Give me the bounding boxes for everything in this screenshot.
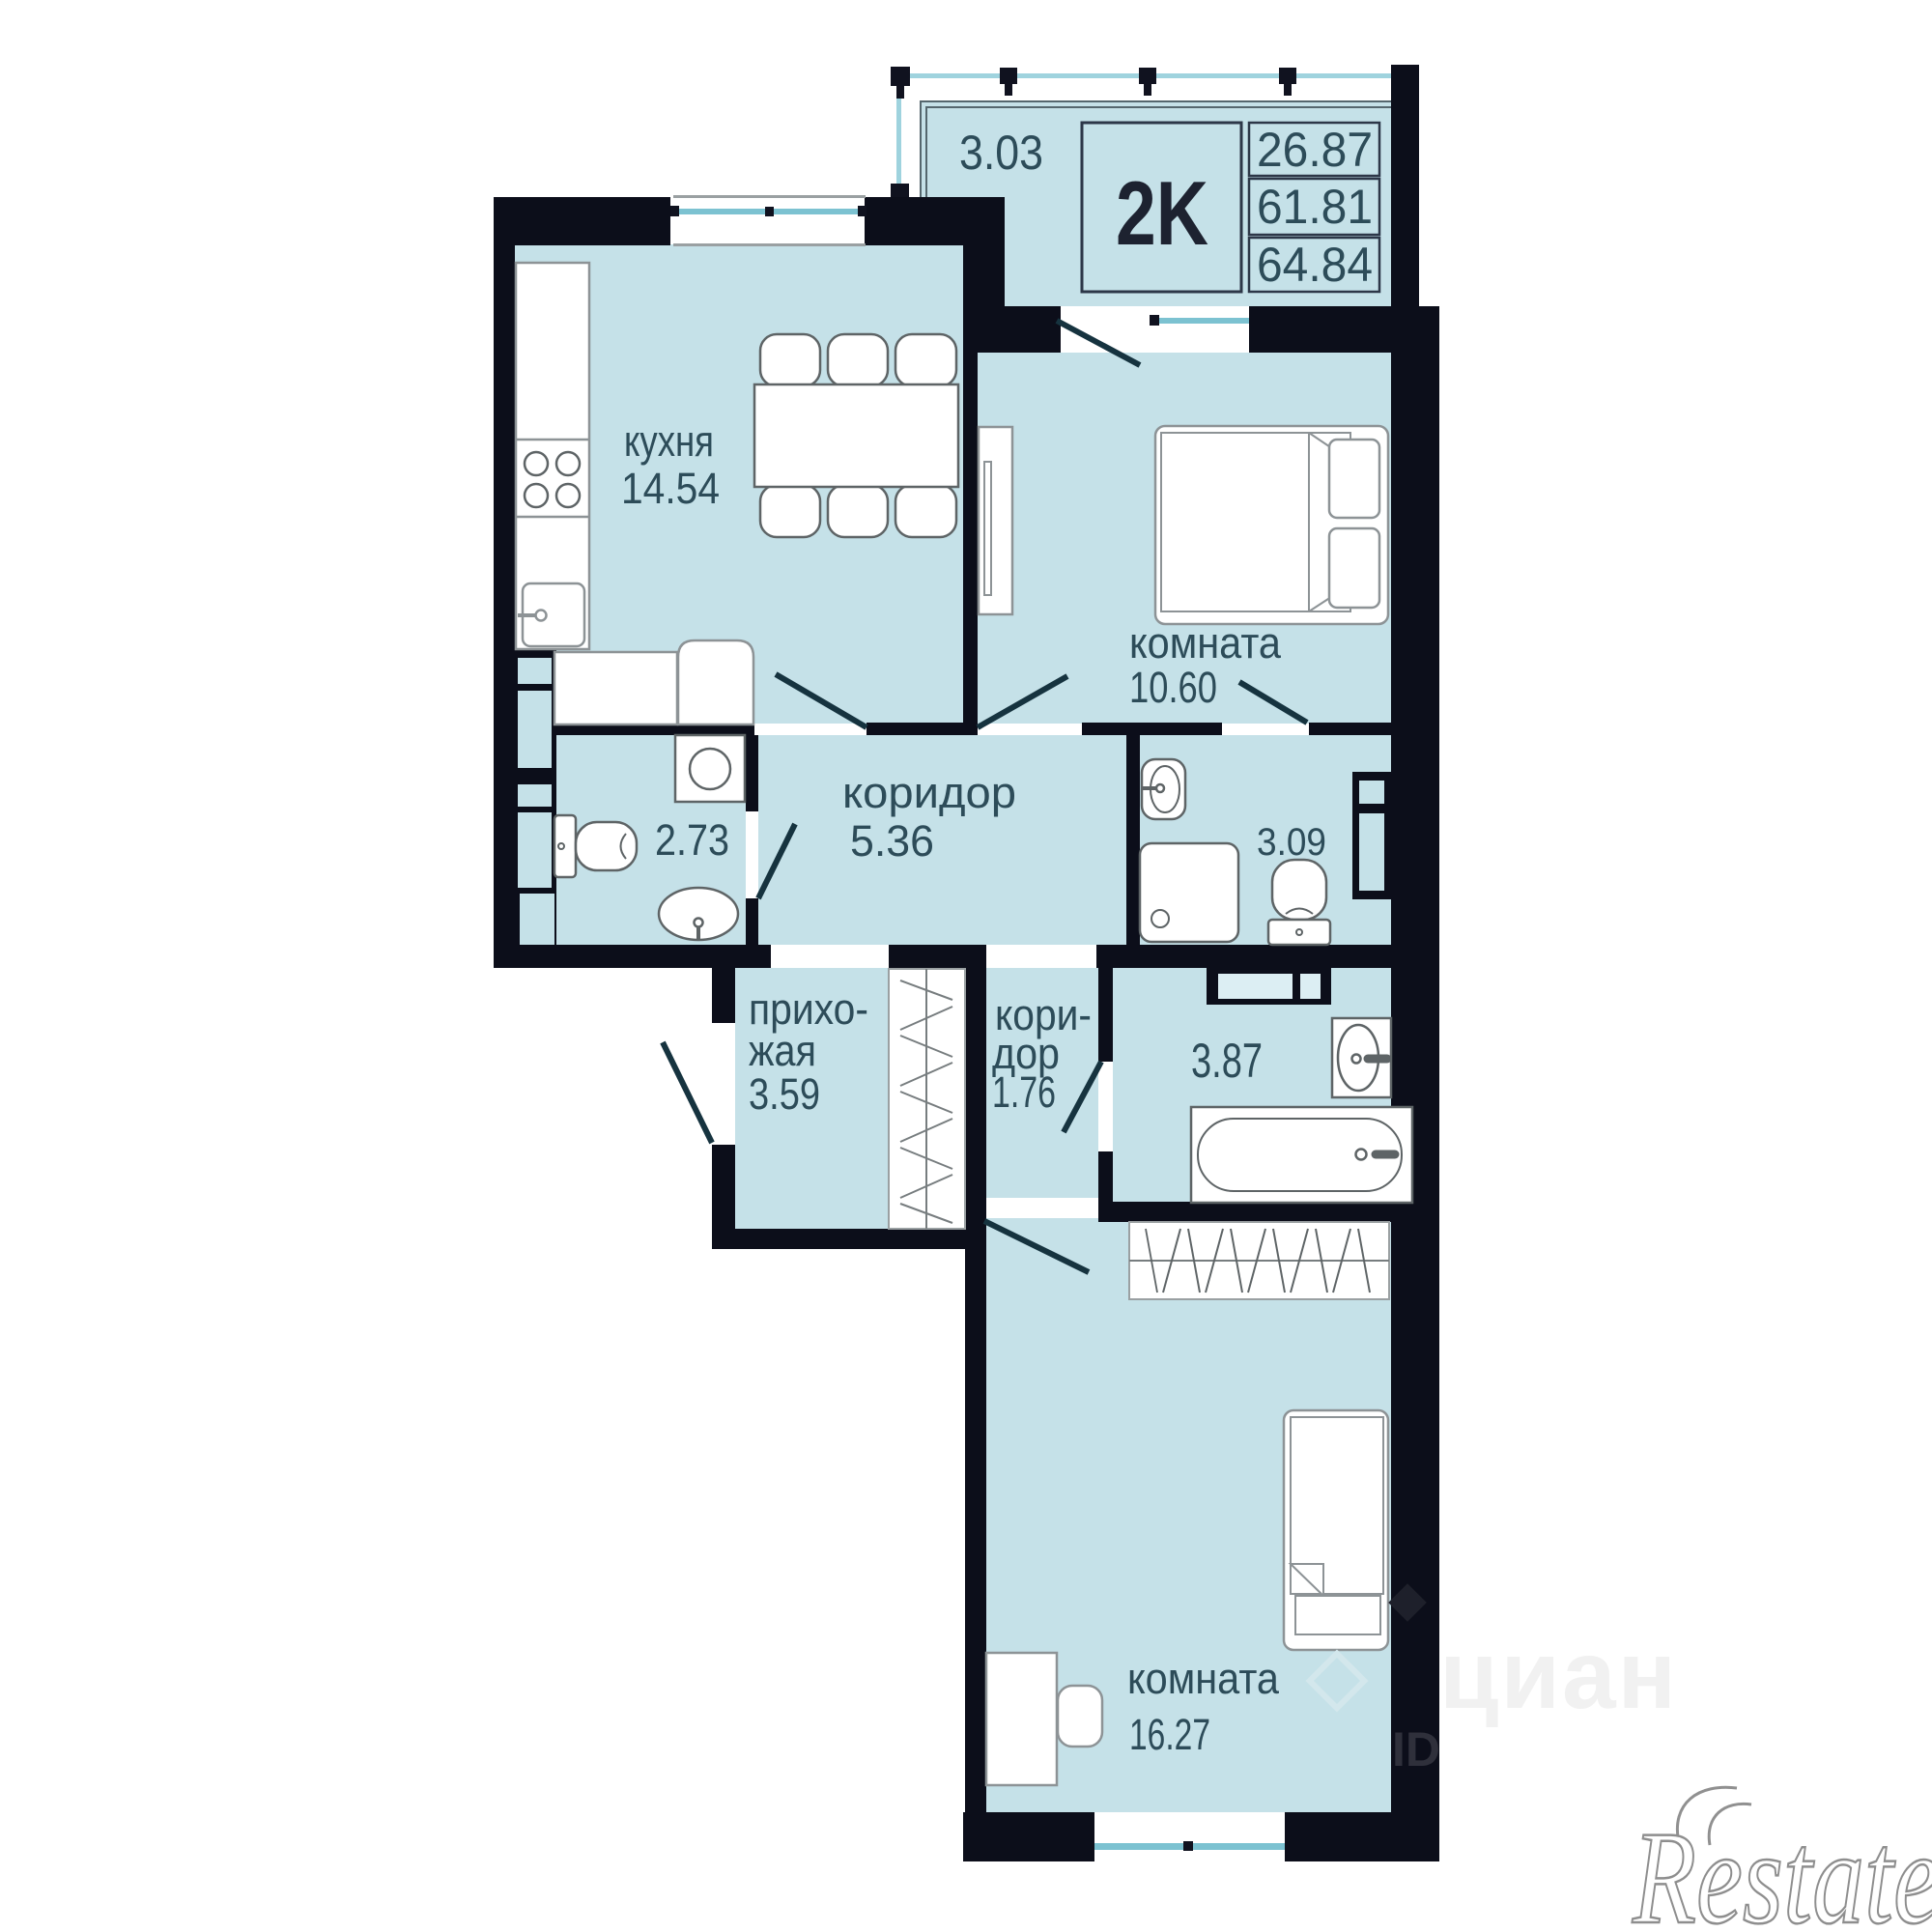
svg-text:ID: ID [1392,1722,1440,1776]
svg-text:3.09: 3.09 [1257,821,1326,864]
svg-text:коридор: коридор [842,768,1016,817]
svg-text:61.81: 61.81 [1257,180,1373,234]
svg-text:5.36: 5.36 [850,816,934,866]
svg-text:26.87: 26.87 [1257,123,1373,177]
svg-text:3.87: 3.87 [1191,1034,1263,1088]
svg-text:10.60: 10.60 [1129,663,1217,712]
svg-text:циан: циан [1439,1621,1678,1729]
svg-text:3.03: 3.03 [959,126,1043,180]
svg-text:14.54: 14.54 [621,464,720,513]
svg-text:1.76: 1.76 [992,1067,1056,1117]
svg-text:комната: комната [1127,1654,1280,1703]
svg-text:2K: 2K [1116,162,1208,264]
svg-text:кухня: кухня [624,416,714,466]
svg-text:3.59: 3.59 [749,1069,820,1119]
svg-text:64.84: 64.84 [1257,238,1373,292]
svg-text:Restate: Restate [1632,1804,1932,1932]
svg-text:жая: жая [749,1026,816,1075]
svg-text:2.73: 2.73 [655,815,729,865]
svg-text:комната: комната [1129,618,1282,668]
svg-text:16.27: 16.27 [1129,1710,1210,1759]
